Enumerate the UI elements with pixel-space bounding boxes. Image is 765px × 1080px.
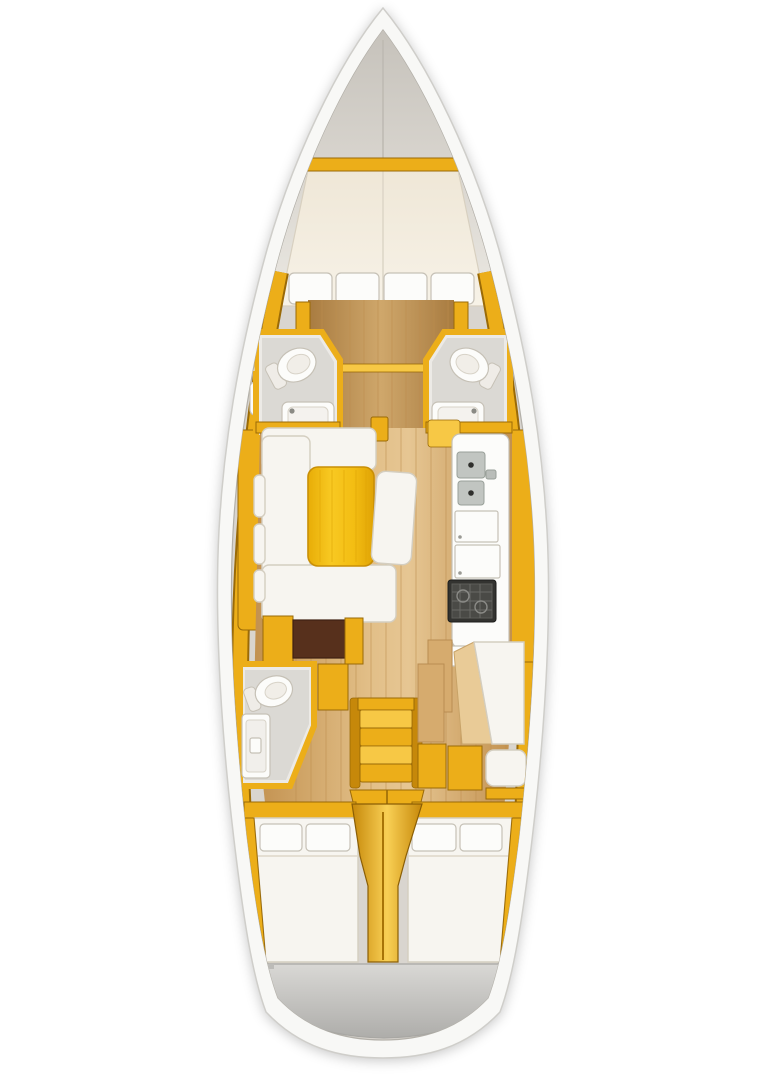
yacht-floorplan-page <box>0 0 765 1080</box>
sofa-hull-cushion <box>254 570 265 602</box>
v-berth-headboard-trim <box>302 158 464 171</box>
yacht-floorplan-diagram <box>0 0 765 1080</box>
aft-pillow <box>412 824 456 851</box>
shower-drain <box>250 738 261 753</box>
nav-seat <box>486 750 526 786</box>
stair-tread <box>360 710 412 728</box>
chaise-bench <box>371 471 417 566</box>
locker-handle <box>458 571 462 575</box>
saloon-table <box>308 467 374 566</box>
nav-seat-base <box>486 788 526 799</box>
stair-tread <box>360 728 412 746</box>
v-berth-pillow <box>384 273 427 304</box>
sofa-aft-cabinet-starboard <box>345 618 363 664</box>
brown-cabinet <box>293 620 345 658</box>
v-berth-pillow <box>336 273 379 304</box>
aft-bulkhead-port <box>244 802 356 819</box>
stair-landing-top <box>358 698 414 710</box>
nav-side-locker <box>418 744 446 788</box>
sink-drain <box>468 490 474 496</box>
sink-drain <box>468 462 474 468</box>
sofa-hull-cushion <box>254 524 265 564</box>
sofa-aft-cabinet-port <box>263 616 293 664</box>
port-head-faucet <box>289 408 294 413</box>
nav-station <box>418 642 526 799</box>
aft-pillow <box>460 824 502 851</box>
stair-tread <box>360 764 412 782</box>
corridor-threshold <box>338 364 426 372</box>
midship-locker-port <box>318 664 348 710</box>
sofa-seat-aft <box>262 565 396 622</box>
locker-handle <box>458 535 462 539</box>
nav-side-panel <box>418 664 444 742</box>
v-berth-pillow <box>289 273 332 304</box>
v-berth-pillow <box>431 273 474 304</box>
nav-cabinet <box>448 746 482 790</box>
aft-bulkhead-starboard <box>412 802 524 819</box>
galley-faucet <box>486 470 496 479</box>
sofa-hull-cushion <box>254 475 265 517</box>
aft-pillow <box>260 824 302 851</box>
stair-tread <box>360 746 412 764</box>
companionway <box>350 698 424 814</box>
starboard-head-faucet <box>471 408 476 413</box>
stair-rail-port <box>350 698 360 788</box>
forward-v-berth-cabin <box>280 158 486 306</box>
aft-pillow <box>306 824 350 851</box>
